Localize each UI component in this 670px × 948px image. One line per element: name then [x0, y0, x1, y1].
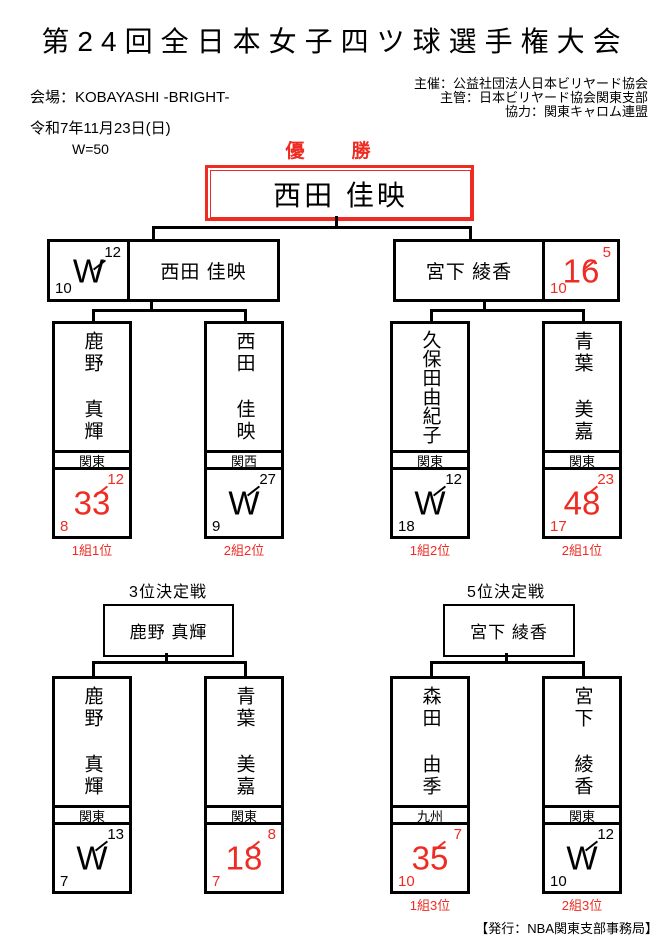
third-place-winner-box: 鹿野 真輝 — [103, 604, 234, 657]
player-name: 森田 由季 — [417, 686, 444, 798]
date-text: 令和7年11月23日(日) — [30, 117, 171, 138]
score-top: 8 — [268, 826, 276, 843]
qf-column-1: 鹿野 真輝 関東 12 33 8 1組1位 — [52, 321, 132, 559]
player-name: 青葉 美嘉 — [231, 686, 258, 798]
connector-line — [430, 309, 585, 312]
player-name-box: 青葉 美嘉 — [204, 676, 284, 808]
player-name: 西田 佳映 — [231, 331, 258, 443]
player-name: 青葉 美嘉 — [569, 331, 596, 443]
score-bottom: 9 — [212, 518, 220, 535]
score-box: 7 35 10 — [390, 822, 470, 894]
sf-left-name-box: 西田 佳映 — [127, 239, 280, 302]
fifth-place-column-2: 宮下 綾香 関東 12 W 10 2組3位 — [542, 676, 622, 914]
champion-label: 優 勝 — [0, 136, 670, 163]
score-bottom: 18 — [398, 518, 415, 535]
champion-box: 西田 佳映 — [205, 165, 474, 221]
group-rank-label: 1組2位 — [390, 540, 470, 559]
score-bottom: 10 — [398, 873, 415, 890]
score-box: 27 W 9 — [204, 467, 284, 539]
player-name-box: 森田 由季 — [390, 676, 470, 808]
connector-line — [430, 661, 433, 676]
score-bottom: 7 — [212, 873, 220, 890]
score-box: 23 48 17 — [542, 467, 622, 539]
sf-right-score-box: 5 16 10 — [542, 239, 620, 302]
third-place-winner: 鹿野 真輝 — [130, 618, 208, 643]
sf-left-score-box: 12 W 10 — [47, 239, 130, 302]
qf-column-4: 青葉 美嘉 関東 23 48 17 2組1位 — [542, 321, 622, 559]
connector-line — [582, 661, 585, 676]
score-top: 12 — [597, 826, 614, 843]
player-name-box: 鹿野 真輝 — [52, 321, 132, 453]
connector-line — [244, 661, 247, 676]
player-name: 久保田由紀子 — [417, 330, 444, 444]
third-place-column-2: 青葉 美嘉 関東 8 18 7 — [204, 676, 284, 894]
fifth-place-title: 5位決定戦 — [390, 578, 622, 602]
score-top: 27 — [259, 471, 276, 488]
player-name-box: 鹿野 真輝 — [52, 676, 132, 808]
score-main: 18 — [207, 842, 281, 875]
score-main: 33 — [55, 487, 129, 520]
connector-line — [152, 226, 472, 229]
score-top: 7 — [454, 826, 462, 843]
score-box: 12 33 8 — [52, 467, 132, 539]
score-main: 48 — [545, 487, 619, 520]
score-top: 13 — [107, 826, 124, 843]
score-main: W — [393, 487, 467, 520]
player-name: 宮下 綾香 — [569, 686, 596, 798]
third-place-column-1: 鹿野 真輝 関東 13 W 7 — [52, 676, 132, 894]
organizer-line-manager: 主管：日本ビリヤード協会関東支部 — [414, 91, 648, 105]
player-name-box: 久保田由紀子 — [390, 321, 470, 453]
score-bottom: 10 — [550, 873, 567, 890]
sf-left-name: 西田 佳映 — [160, 257, 246, 284]
qf-column-2: 西田 佳映 関西 27 W 9 2組2位 — [204, 321, 284, 559]
connector-line — [92, 661, 247, 664]
page-title: 第24回全日本女子四ツ球選手権大会 — [0, 20, 670, 60]
score-main: W — [207, 487, 281, 520]
third-place-title: 3位決定戦 — [52, 578, 284, 602]
score-box: 8 18 7 — [204, 822, 284, 894]
champion-name: 西田 佳映 — [210, 170, 471, 218]
score-bottom: 17 — [550, 518, 567, 535]
publisher-text: 【発行：NBA関東支部事務局】 — [475, 918, 658, 937]
venue-text: 会場：KOBAYASHI -BRIGHT- — [30, 86, 229, 107]
group-rank-label: 2組3位 — [542, 895, 622, 914]
organizer-block: 主催：公益社団法人日本ビリヤード協会 主管：日本ビリヤード協会関東支部 協力：関… — [414, 77, 648, 119]
sf-left-score-bottom: 10 — [55, 280, 72, 297]
organizer-line-support: 協力：関東キャロム連盟 — [414, 105, 648, 119]
group-rank-label: 2組2位 — [204, 540, 284, 559]
connector-line — [430, 661, 585, 664]
connector-line — [92, 309, 247, 312]
player-name-box: 西田 佳映 — [204, 321, 284, 453]
fifth-place-column-1: 森田 由季 九州 7 35 10 1組3位 — [390, 676, 470, 914]
player-name-box: 宮下 綾香 — [542, 676, 622, 808]
score-main: W — [545, 842, 619, 875]
qf-column-3: 久保田由紀子 関東 12 W 18 1組2位 — [390, 321, 470, 559]
group-rank-label: 1組1位 — [52, 540, 132, 559]
score-box: 12 W 18 — [390, 467, 470, 539]
player-name: 鹿野 真輝 — [79, 686, 106, 798]
fifth-place-winner-box: 宮下 綾香 — [443, 604, 575, 657]
score-bottom: 7 — [60, 873, 68, 890]
connector-line — [92, 661, 95, 676]
sf-right-name: 宮下 綾香 — [426, 257, 512, 284]
group-rank-label: 1組3位 — [390, 895, 470, 914]
score-top: 12 — [445, 471, 462, 488]
connector-line — [469, 226, 472, 240]
score-box: 13 W 7 — [52, 822, 132, 894]
tournament-sheet: 第24回全日本女子四ツ球選手権大会 会場：KOBAYASHI -BRIGHT- … — [0, 0, 670, 948]
score-main: W — [55, 842, 129, 875]
connector-line — [152, 226, 155, 240]
fifth-place-winner: 宮下 綾香 — [470, 618, 548, 643]
score-main: 35 — [393, 842, 467, 875]
sf-right-score-bottom: 10 — [550, 280, 567, 297]
group-rank-label: 2組1位 — [542, 540, 622, 559]
player-name-box: 青葉 美嘉 — [542, 321, 622, 453]
sf-right-name-box: 宮下 綾香 — [393, 239, 545, 302]
score-bottom: 8 — [60, 518, 68, 535]
player-name: 鹿野 真輝 — [79, 331, 106, 443]
organizer-line-host: 主催：公益社団法人日本ビリヤード協会 — [414, 77, 648, 91]
score-box: 12 W 10 — [542, 822, 622, 894]
